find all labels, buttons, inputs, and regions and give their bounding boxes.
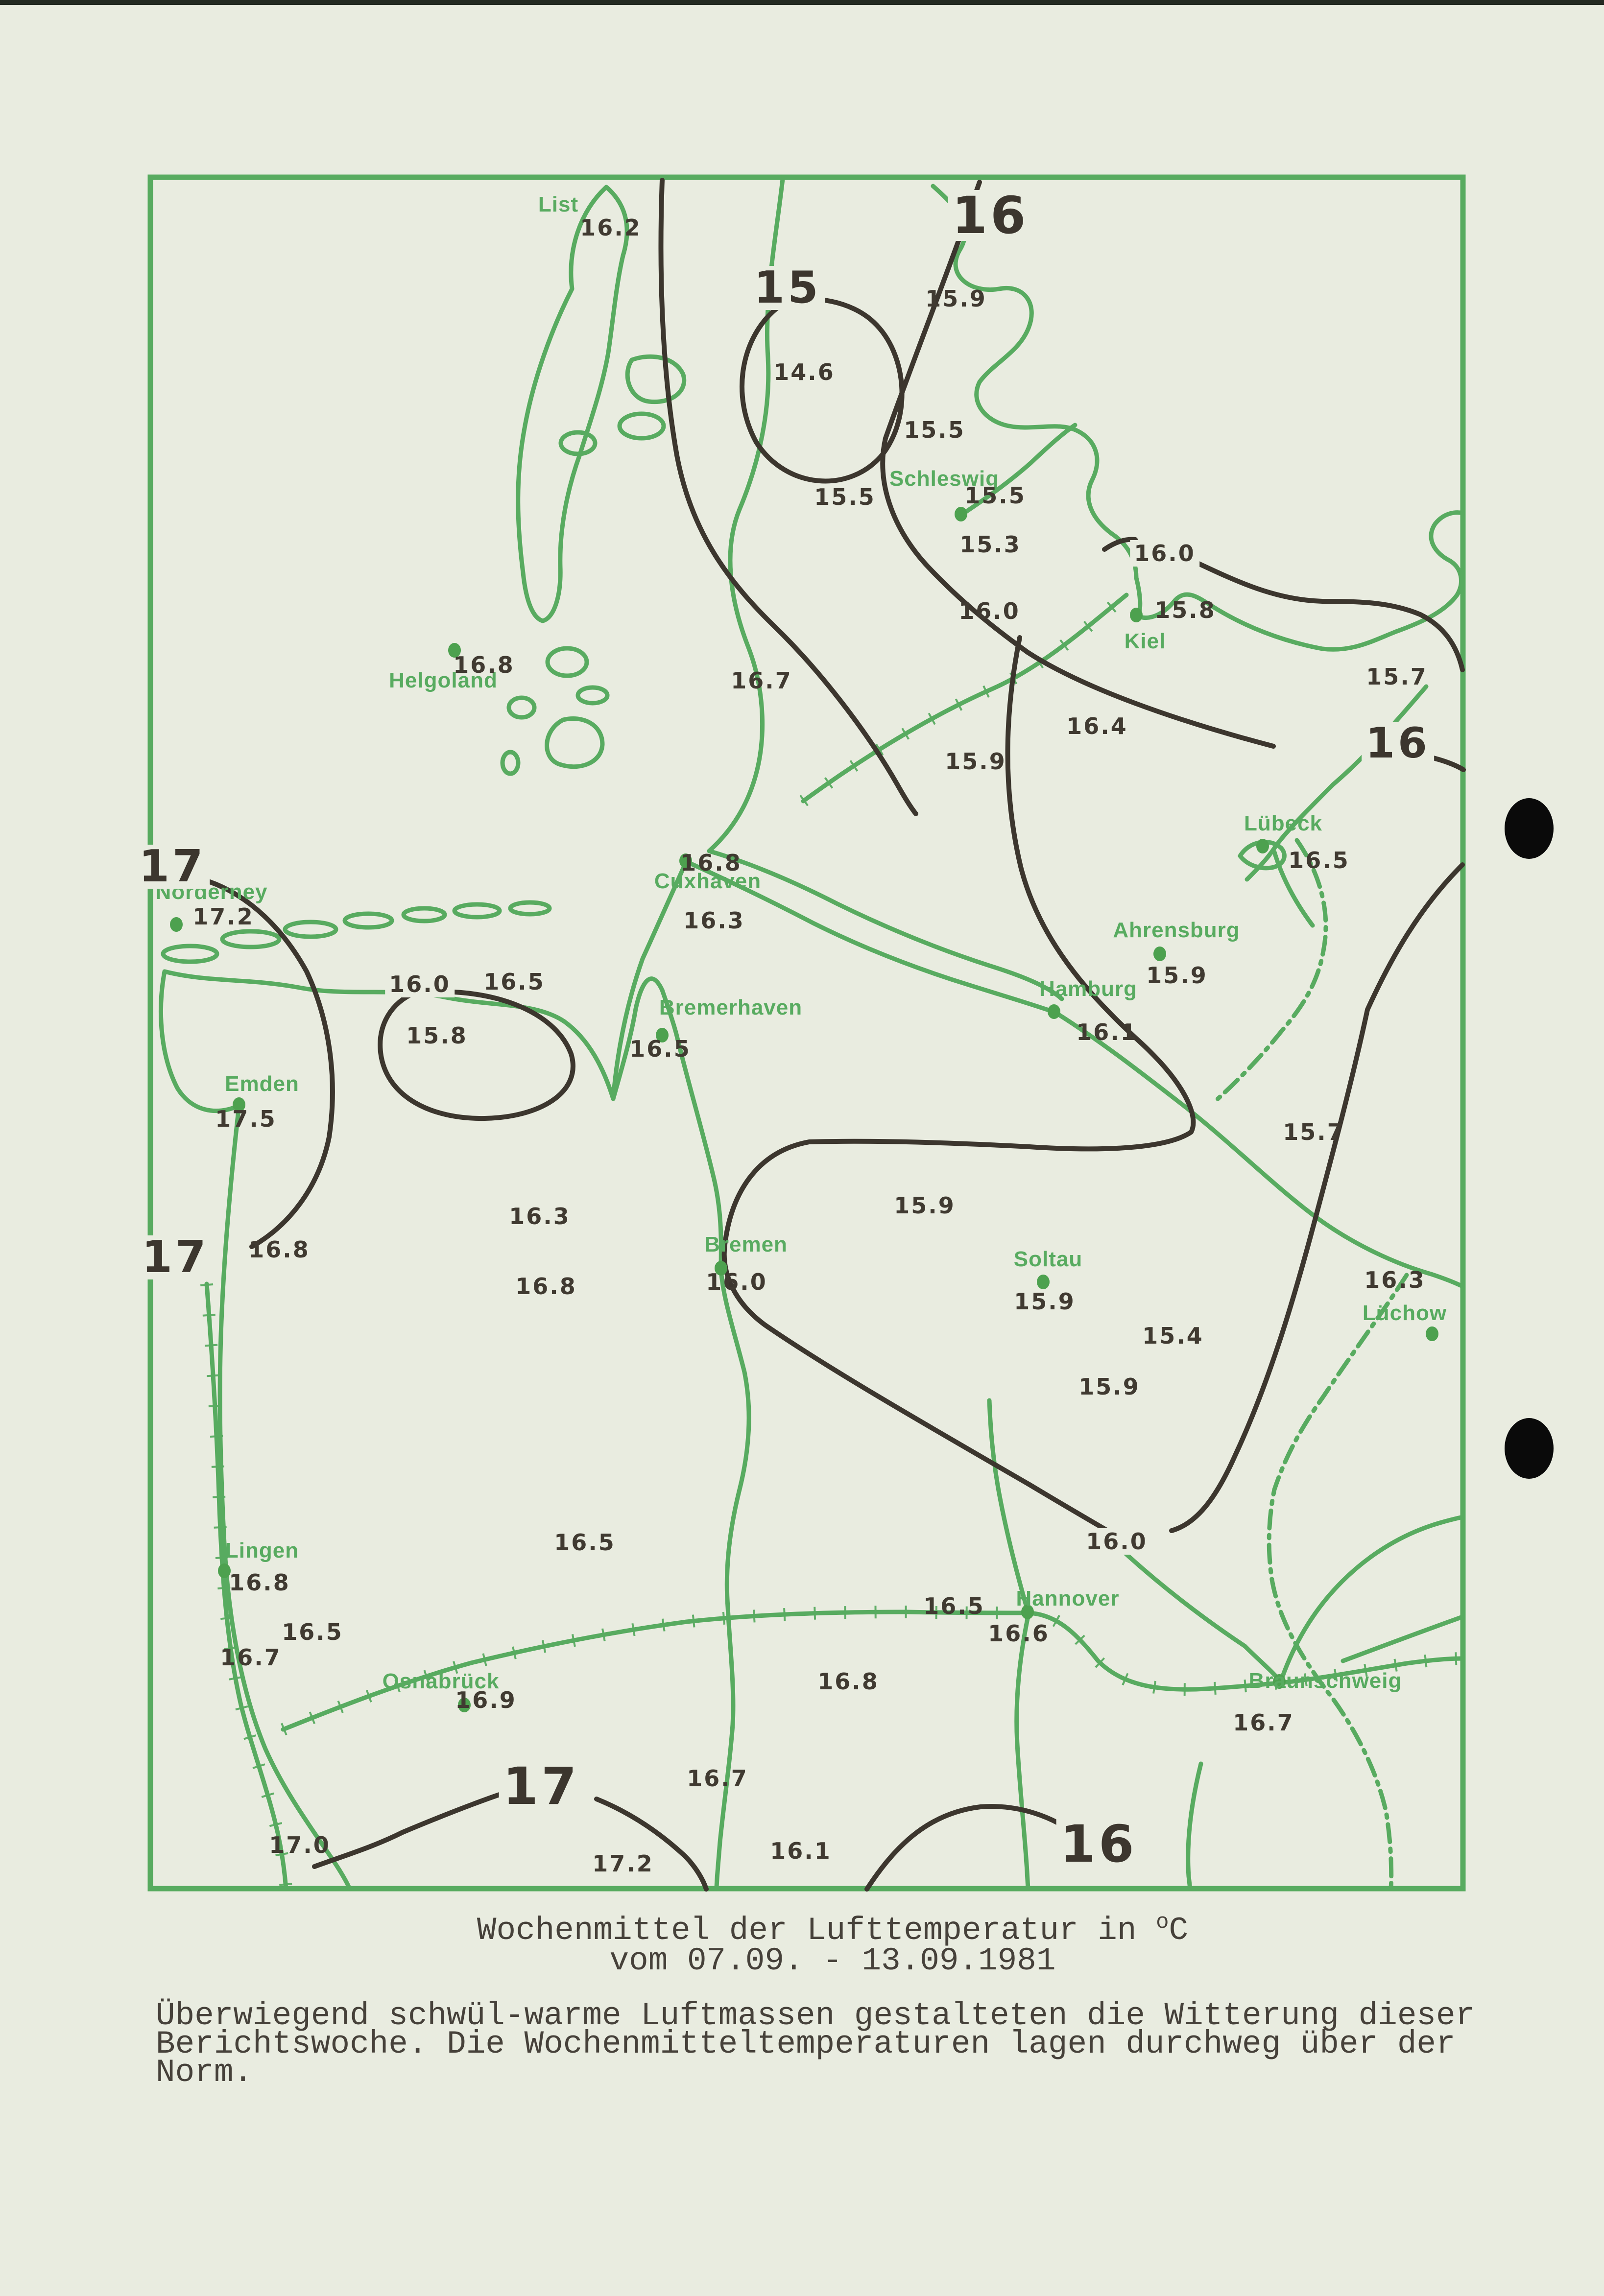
isotherm-16-east xyxy=(1172,865,1462,1531)
paragraph-line: Berichtswoche. Die Wochenmitteltemperatu… xyxy=(156,2030,1537,2059)
island xyxy=(509,698,534,717)
west-coast xyxy=(709,179,783,851)
caption-line-1: Wochenmittel der Lufttemperatur in oC xyxy=(441,1907,1224,1946)
southwest-coast xyxy=(161,863,686,1111)
leine-river-north xyxy=(989,1400,1029,1614)
leine-river xyxy=(1017,1614,1029,1889)
isotherm-17-northwest-tail xyxy=(151,1258,166,1260)
frisian-island xyxy=(163,946,217,962)
aller-river xyxy=(1118,1546,1280,1681)
island xyxy=(561,432,595,454)
border-netherlands-ticks xyxy=(207,1284,286,1889)
oker-river-south xyxy=(1188,1764,1201,1889)
frisian-island xyxy=(404,908,445,921)
paragraph-line: Norm. xyxy=(156,2059,1537,2087)
elbe-estuary-north-bank xyxy=(709,851,1062,999)
frisian-island xyxy=(285,922,336,937)
isotherm-contours xyxy=(151,180,1463,1889)
isotherm-17-south-west xyxy=(314,1788,520,1867)
isotherm-16-kiel-stub xyxy=(1104,540,1135,549)
weser-river xyxy=(662,990,749,1889)
border-gdr-north xyxy=(1215,840,1326,1102)
schlei-inlet xyxy=(961,425,1075,515)
island xyxy=(547,718,602,766)
aller-river-east xyxy=(1343,1617,1462,1661)
island xyxy=(578,687,607,703)
baltic-coast xyxy=(933,186,1463,649)
kiel-canal-ticks xyxy=(803,595,1126,801)
isotherm-16-north-east-tail xyxy=(1429,757,1463,770)
isotherm-16-main-loop xyxy=(724,638,1194,1542)
map-caption: Wochenmittel der Lufttemperatur in oC vo… xyxy=(441,1907,1224,1976)
elbe-estuary-south-bank xyxy=(687,862,1053,1012)
coastlines-and-rivers xyxy=(161,179,1463,1889)
isotherm-17-south-east xyxy=(597,1799,706,1889)
island-sylt xyxy=(518,187,627,621)
frisian-island xyxy=(345,914,392,927)
island xyxy=(503,752,518,774)
degree-symbol: o xyxy=(1156,1910,1169,1935)
map-frame xyxy=(150,177,1463,1889)
island xyxy=(548,648,587,676)
frisian-island xyxy=(222,931,279,947)
isotherm-16-south xyxy=(867,1806,1076,1889)
report-paragraph: Überwiegend schwül-warme Luftmassen gest… xyxy=(156,2002,1537,2087)
island xyxy=(620,414,664,438)
isotherm-15-west xyxy=(661,180,916,814)
border-gdr-south xyxy=(1269,1275,1407,1889)
isotherm-16-north xyxy=(883,182,1273,746)
frisian-island xyxy=(455,904,500,917)
kiel-canal xyxy=(803,595,1126,801)
frisian-island xyxy=(510,902,550,914)
hallig-island xyxy=(627,356,684,402)
trave-river xyxy=(1274,852,1313,925)
caption-line-2: vom 07.09. - 13.09.1981 xyxy=(441,1946,1224,1976)
